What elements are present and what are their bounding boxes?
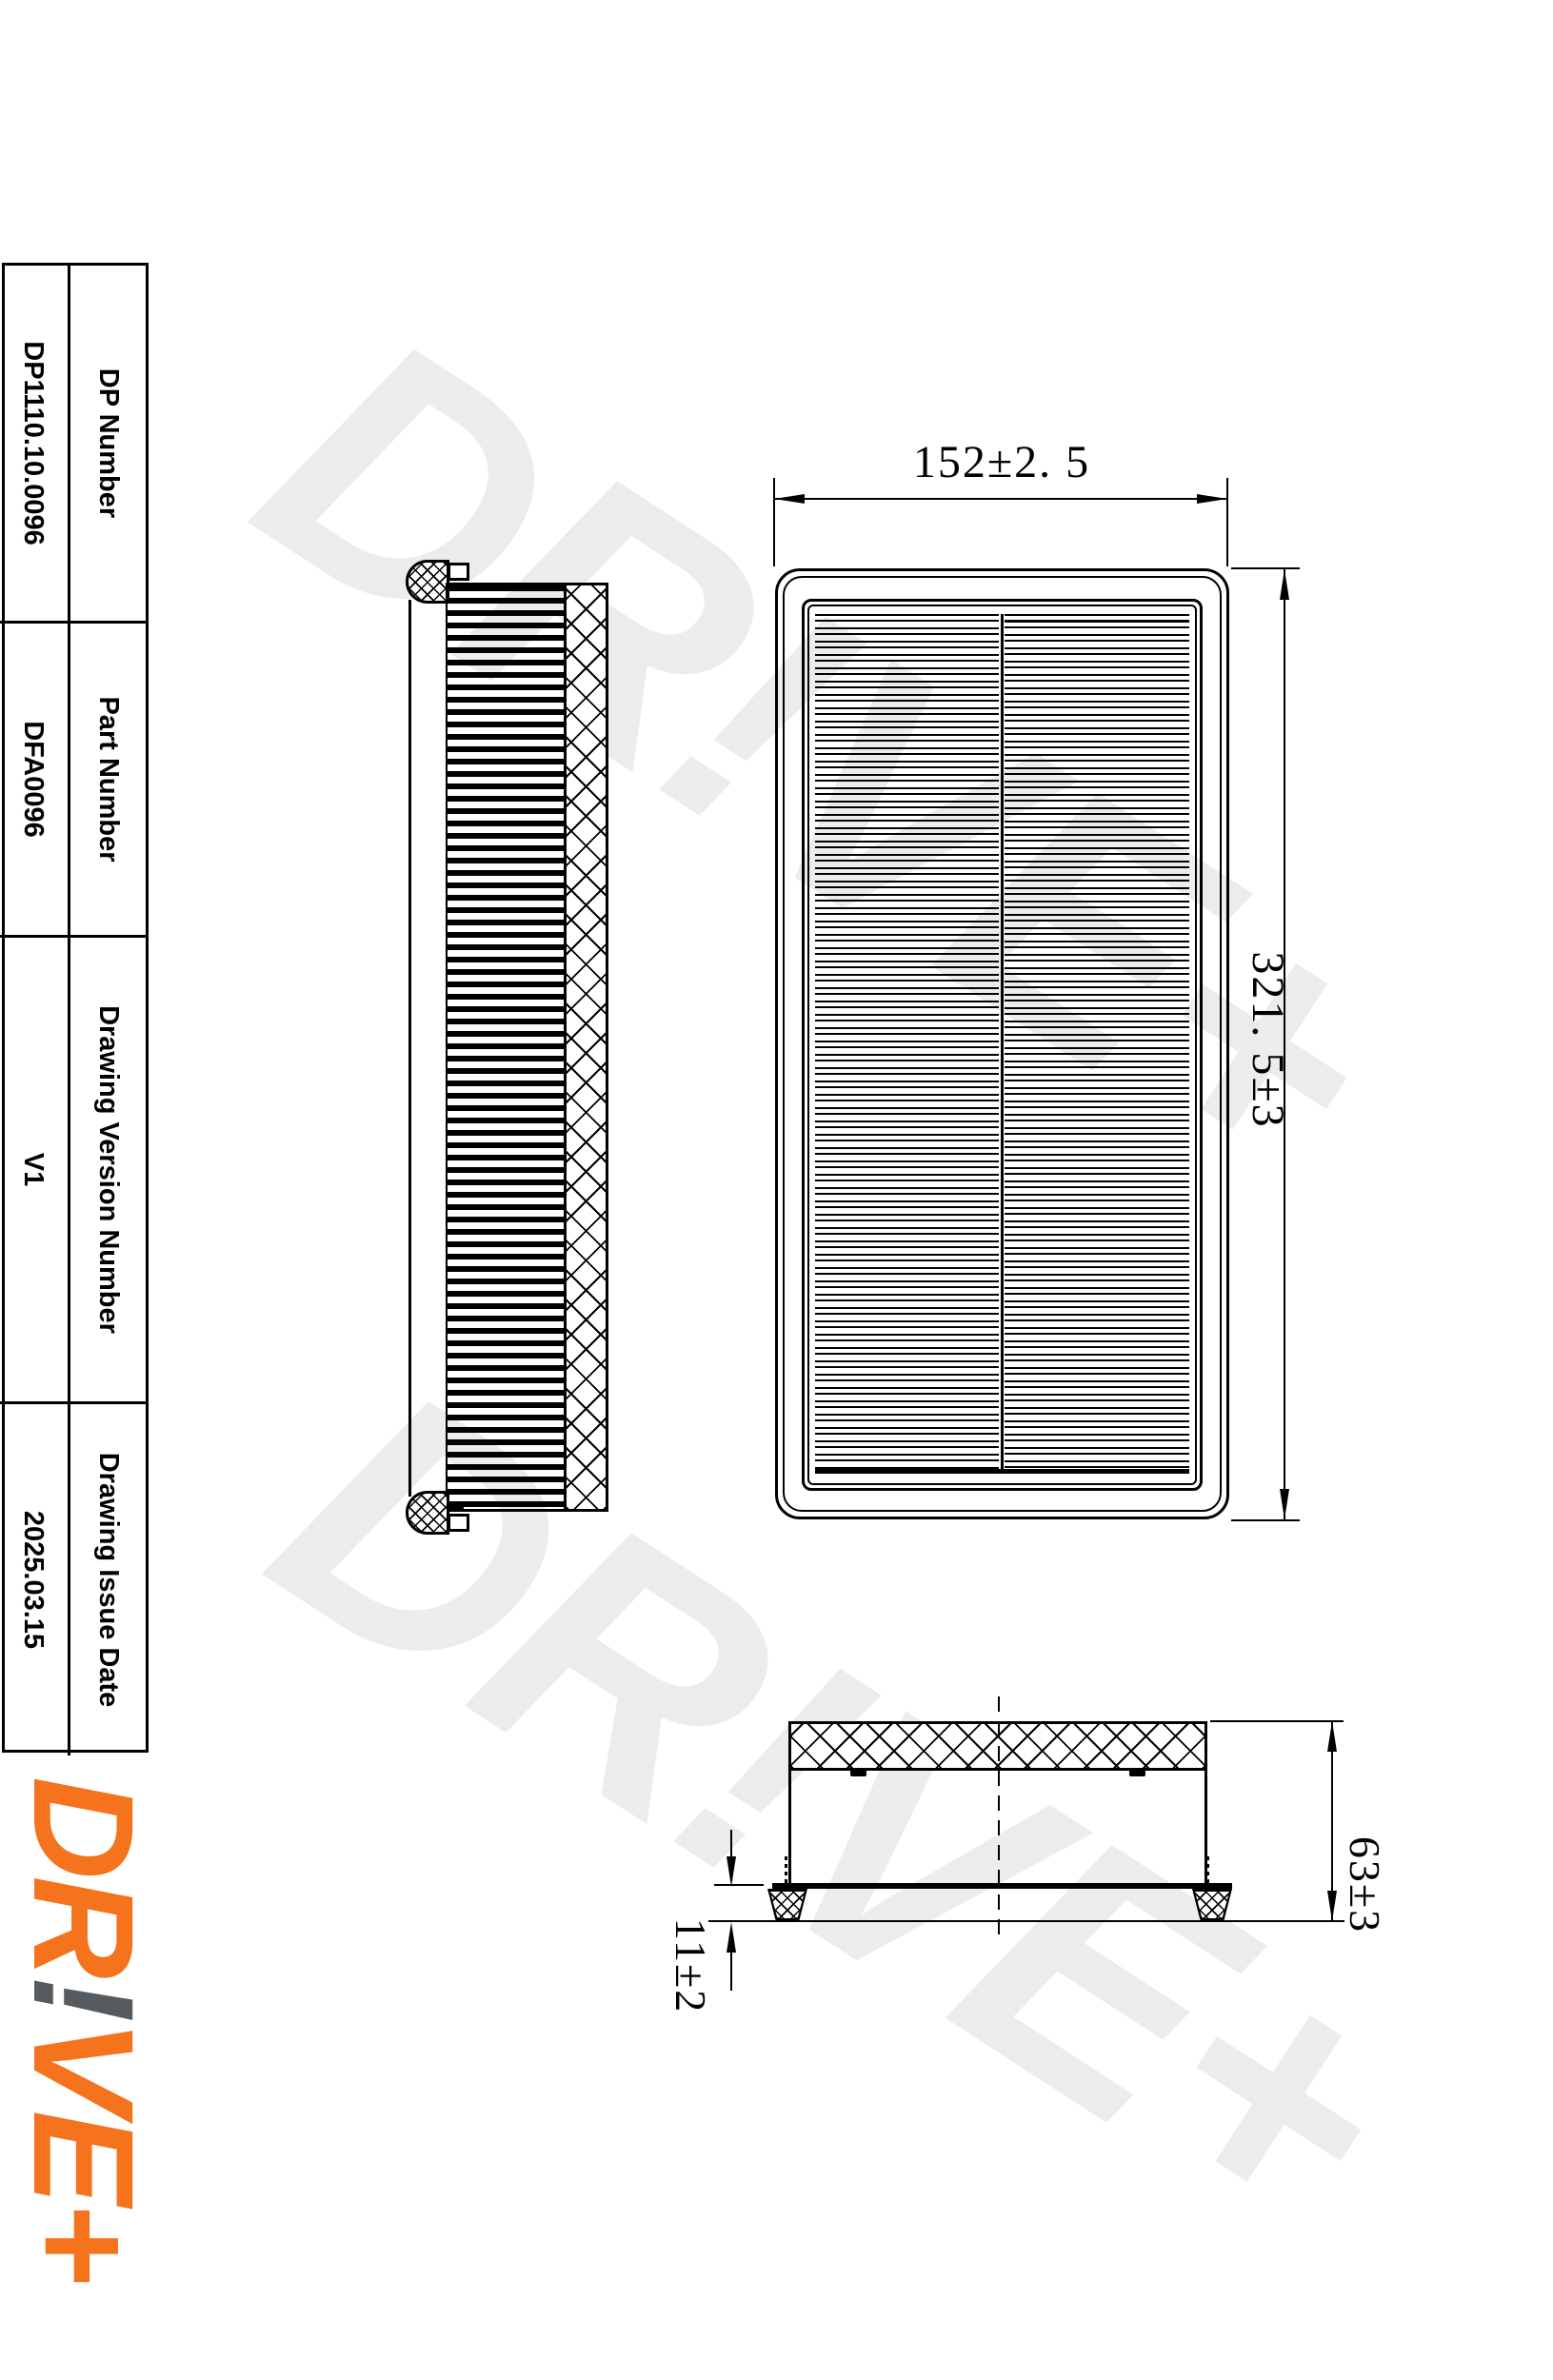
logo-text-bang: ! (24, 1975, 143, 2019)
ground-extension-line (708, 1920, 1344, 1922)
issue-date-value: 2025.03.15 (0, 1401, 70, 1755)
extension-line (1210, 1720, 1344, 1722)
top-view-pleats-right-half (1005, 614, 1189, 1474)
side-view-bottom-tick (449, 1507, 464, 1512)
drawing-version-header: Drawing Version Number (70, 935, 146, 1401)
arrow-right-icon (1197, 494, 1227, 504)
logo-text-dr: DR (24, 1776, 143, 1975)
end-view-centerline (998, 1696, 1000, 1934)
dimension-line (730, 1951, 732, 1991)
issue-date-header: Drawing Issue Date (70, 1401, 146, 1755)
side-view-top-seal-cap (406, 560, 449, 604)
side-view-bottom-notch (448, 1514, 469, 1532)
arrow-left-icon (774, 494, 805, 504)
end-view-stub-left (785, 1856, 787, 1884)
end-view-base-plate (772, 1883, 1232, 1889)
width-dimension-label: 152±2. 5 (859, 436, 1145, 488)
arrow-up-icon (1327, 1721, 1337, 1752)
top-view-pleats-left-half (815, 614, 999, 1474)
extension-line (1231, 1519, 1300, 1521)
drawing-info-table: DP Number Part Number Drawing Version Nu… (2, 263, 149, 1753)
foot-height-dimension-label: 11±2 (668, 1910, 712, 2022)
arrow-down-icon (1280, 1489, 1289, 1519)
height-dimension-label: 321. 5±3 (1244, 947, 1291, 1133)
side-view-media-hatch-band (564, 583, 608, 1512)
technical-drawing-page: DR!VE+ DR!VE+ DP Number Part Number Draw… (0, 0, 1553, 2380)
drive-plus-logo: DR ! VE+ (24, 1776, 143, 2370)
extension-line (714, 1884, 764, 1886)
arrow-down-icon (1327, 1891, 1337, 1921)
dp-number-value: DP1110.10.0096 (0, 266, 70, 621)
part-number-value: DFA0096 (0, 621, 70, 935)
side-view-top-notch (448, 563, 469, 581)
side-view-left-edge-line (408, 600, 411, 1497)
top-view-last-pleat-line (815, 1469, 1189, 1474)
arrow-down-icon (727, 1856, 736, 1887)
side-view-bottom-seal-cap (406, 1491, 449, 1535)
arrow-up-icon (727, 1922, 736, 1953)
dimension-line (774, 498, 1227, 500)
depth-dimension-label: 63±3 (1343, 1814, 1386, 1956)
end-view-tab-right (1129, 1768, 1145, 1776)
drawing-version-value: V1 (0, 935, 70, 1401)
end-view-tab-left (850, 1768, 866, 1776)
arrow-up-icon (1280, 569, 1289, 600)
dp-number-header: DP Number (70, 266, 146, 621)
top-view-center-divider-line (1001, 614, 1004, 1474)
end-view-stub-right (1206, 1856, 1209, 1884)
extension-line (1231, 567, 1300, 569)
side-view-pleats (446, 583, 564, 1512)
part-number-header: Part Number (70, 621, 146, 935)
extension-line (773, 478, 775, 566)
logo-text-vep: VE+ (24, 2019, 143, 2282)
extension-line (1226, 478, 1228, 566)
